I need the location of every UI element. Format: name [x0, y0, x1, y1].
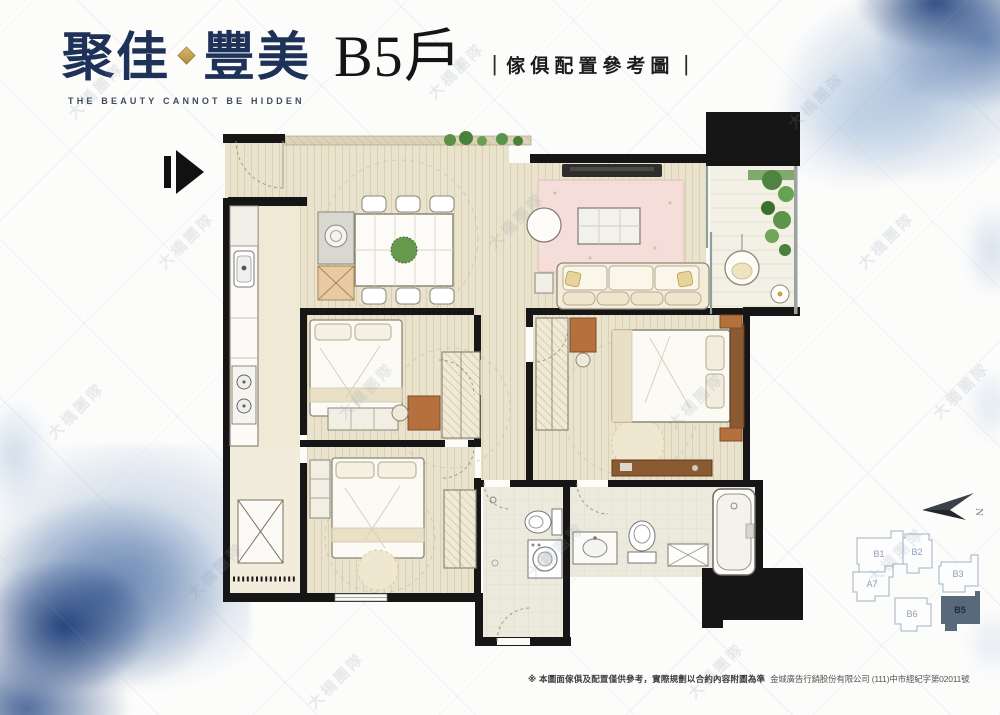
dining-chair [430, 196, 454, 212]
dining-chair [396, 288, 420, 304]
sofa-side-table [535, 273, 553, 293]
bedside-shelf [310, 460, 330, 518]
watermark-text: 大橋團隊 [928, 358, 994, 424]
key-plan: B1 B2 A7 B3 B6 B5 [845, 520, 995, 660]
footer-disclaimer: ※ 本圖面傢俱及配置僅供參考，實際規劃以合約內容附圖為準 [528, 673, 765, 685]
keyplan-label-b6: B6 [906, 609, 917, 619]
keyplan-label-a7: A7 [866, 579, 877, 589]
floor-plan [150, 108, 850, 670]
brand-logo: 聚佳 豐美 THE BEAUTY CANNOT BE HIDDEN [62, 30, 311, 106]
toilet [552, 509, 562, 535]
top-ledge [285, 131, 531, 146]
bed-bench [328, 408, 398, 430]
keyplan-label-b5: B5 [954, 605, 966, 615]
watercolor-right-upper [950, 185, 1000, 315]
dining-chair [362, 288, 386, 304]
brand-name: 聚佳 豐美 [62, 30, 311, 87]
brand-name-left: 聚佳 [62, 30, 170, 87]
watermark-text: 大橋團隊 [43, 378, 109, 444]
watermark-text: 大橋團隊 [853, 208, 919, 274]
brand-tagline: THE BEAUTY CANNOT BE HIDDEN [62, 96, 311, 106]
keyplan-label-b2: B2 [911, 547, 922, 557]
dining-chair [396, 196, 420, 212]
brand-name-right: 豐美 [203, 30, 311, 87]
dining-chair [430, 288, 454, 304]
desk-chair [392, 405, 408, 421]
watercolor-left-middle [0, 380, 75, 530]
nightstand [720, 428, 742, 441]
desk [408, 396, 440, 430]
flyer-page: 大橋團隊 大橋團隊 大橋團隊 大橋團隊 大橋團隊 大橋團隊 大橋團隊 大橋團隊 … [0, 0, 1000, 715]
watercolor-right-mid [955, 355, 1000, 455]
side-table-round [527, 208, 561, 242]
keyplan-label-b3: B3 [952, 569, 963, 579]
gold-diamond-icon [177, 46, 195, 64]
round-rug [358, 550, 398, 590]
dining-chair [362, 196, 386, 212]
nightstand [720, 315, 742, 328]
table-plant [391, 237, 417, 263]
entry-arrow-icon [164, 156, 171, 188]
throw-pillow [565, 271, 582, 288]
plan-title: B5戶 | 傢俱配置參考圖 | [334, 28, 698, 86]
kitchen [230, 206, 258, 446]
divider-bar: | [492, 51, 498, 77]
keyplan-label-b1: B1 [873, 549, 884, 559]
toilet [628, 552, 656, 563]
footer-company-license: 金城廣告行銷股份有限公司 (111)中市經紀字第02011號 [770, 673, 969, 685]
compass-north-label: N [973, 508, 985, 516]
plan-subtitle-text: 傢俱配置參考圖 [506, 51, 674, 78]
headboard [730, 324, 744, 428]
throw-pillow [677, 271, 693, 287]
divider-bar: | [683, 51, 689, 77]
vanity-stool [576, 353, 590, 367]
plan-subtitle: | 傢俱配置參考圖 | [483, 51, 698, 78]
unit-label: B5戶 [334, 28, 463, 86]
vanity [570, 318, 596, 352]
